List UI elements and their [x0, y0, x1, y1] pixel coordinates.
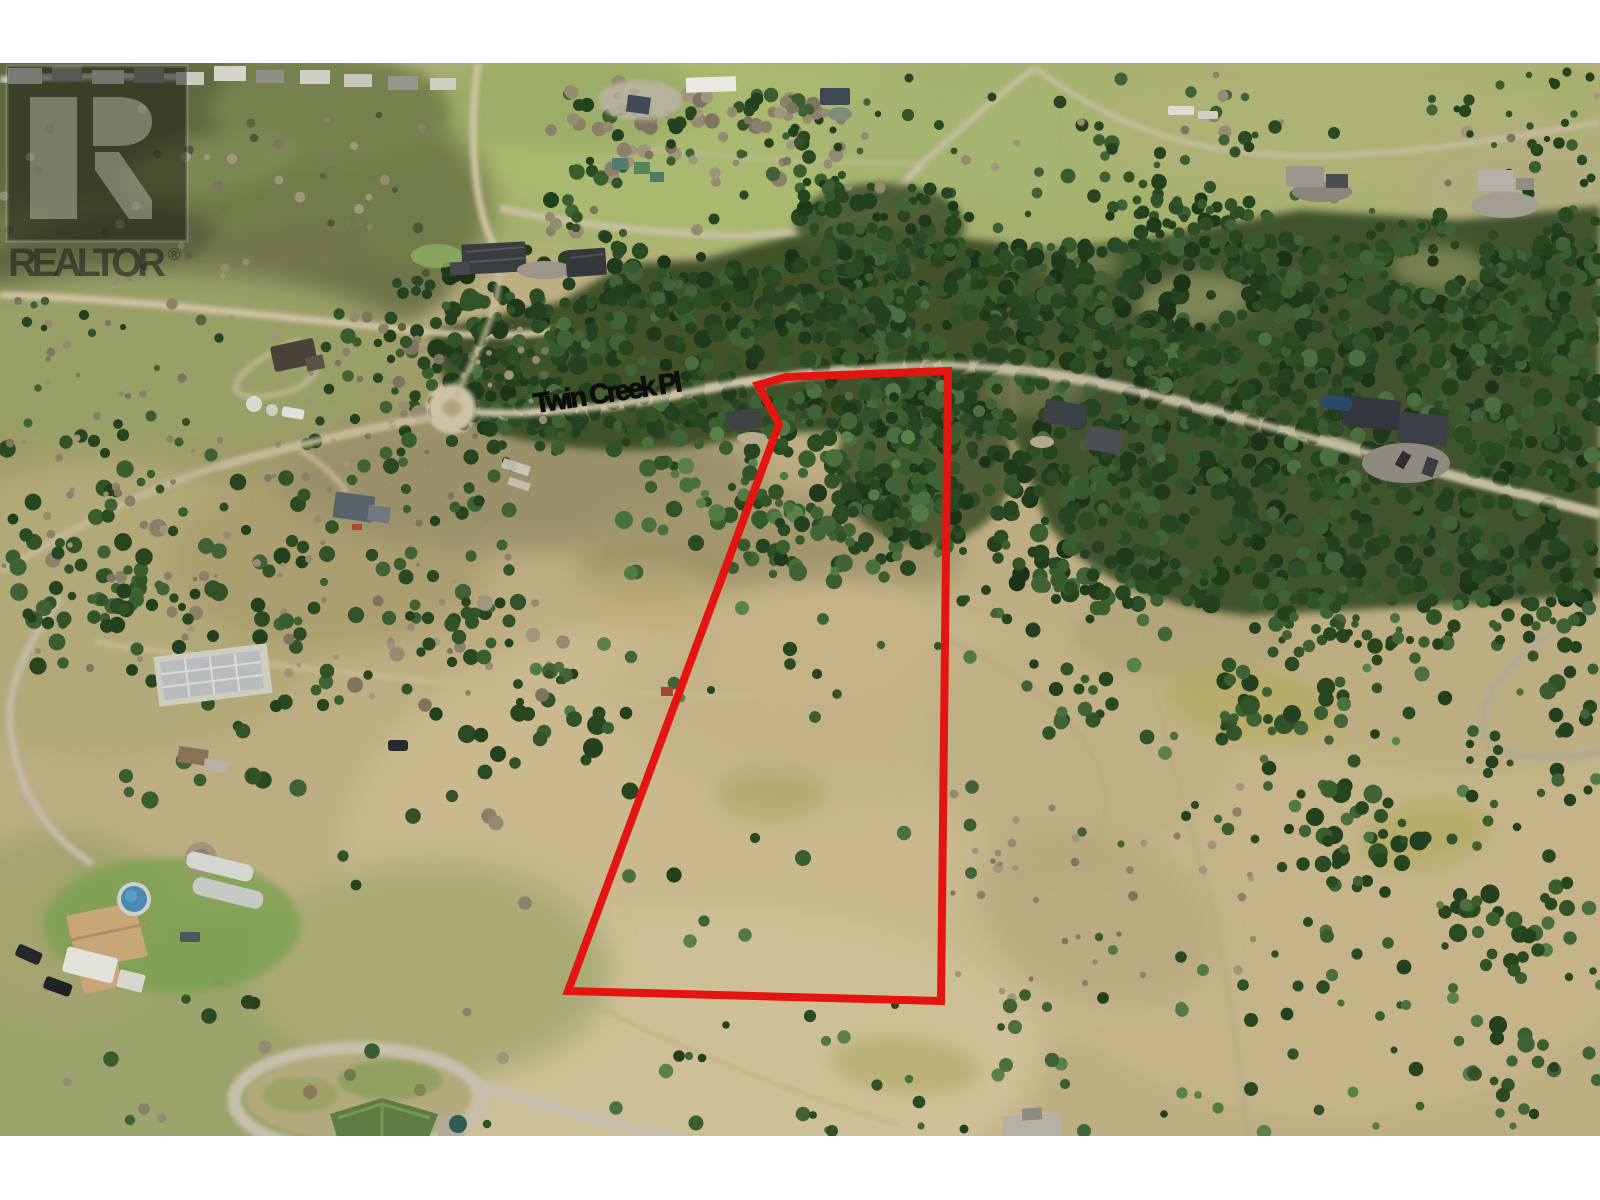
- svg-text:®: ®: [168, 245, 181, 264]
- svg-text:REALTOR: REALTOR: [8, 241, 166, 285]
